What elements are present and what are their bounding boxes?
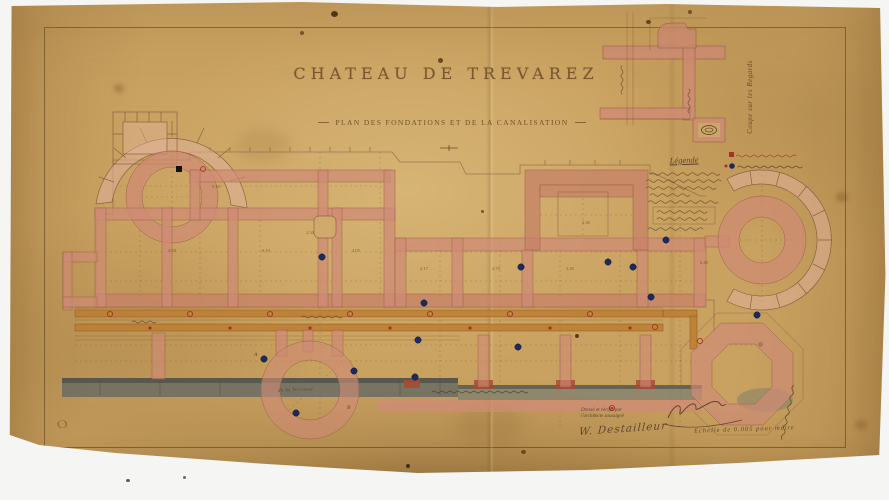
drafted-note-line: l'architecte soussigné: [581, 414, 624, 420]
page-subtitle: PLAN DES FONDATIONS ET DE LA CANALISATIO…: [318, 118, 586, 127]
stain-spot: [183, 476, 186, 479]
point-label: A: [254, 352, 257, 358]
dimension-label: 2.30: [582, 220, 590, 225]
dimension-label: 3.45: [566, 266, 574, 271]
point-label: B: [347, 405, 350, 411]
dimension-label: 2.50: [306, 230, 314, 235]
dimension-label: 6.10: [262, 248, 270, 253]
subtitle-text: PLAN DES FONDATIONS ET DE LA CANALISATIO…: [335, 118, 568, 127]
dimension-label: 5.20: [212, 184, 220, 189]
page-title: CHATEAU DE TREVAREZ: [285, 64, 607, 83]
subtitle-dash: [575, 122, 586, 123]
inset-plan: [600, 12, 725, 142]
legend-heading: Légende: [656, 154, 712, 166]
stamp-mark: O: [56, 417, 69, 432]
legend-blue-marker: [729, 163, 735, 169]
plan-sheet: CHATEAU DE TREVAREZ PLAN DES FONDATIONS …: [0, 0, 889, 500]
canal-pipes: [75, 308, 697, 349]
dimension-label: 4.70: [492, 266, 500, 271]
inset-caption: Coupe sur les Regards: [746, 51, 754, 143]
legend-red-marker: [729, 152, 734, 157]
subtitle-dash: [318, 122, 329, 123]
legend-markers: [725, 152, 735, 169]
dimension-label: 2.17: [420, 266, 428, 271]
dimension-label: 4.05: [352, 248, 360, 253]
dimension-label: 4.50: [168, 248, 176, 253]
drafted-note: Dressé et vérifié par l'architecte souss…: [581, 408, 624, 420]
black-square-marker: [176, 166, 182, 172]
title-text: CHATEAU DE TREVAREZ: [293, 64, 598, 83]
title-tick: [440, 145, 458, 151]
stain-spot: [126, 479, 130, 482]
photo-of-plan: CHATEAU DE TREVAREZ PLAN DES FONDATIONS …: [0, 0, 889, 500]
dimension-label: 6.40: [700, 260, 708, 265]
terrace-wall: [62, 378, 793, 412]
